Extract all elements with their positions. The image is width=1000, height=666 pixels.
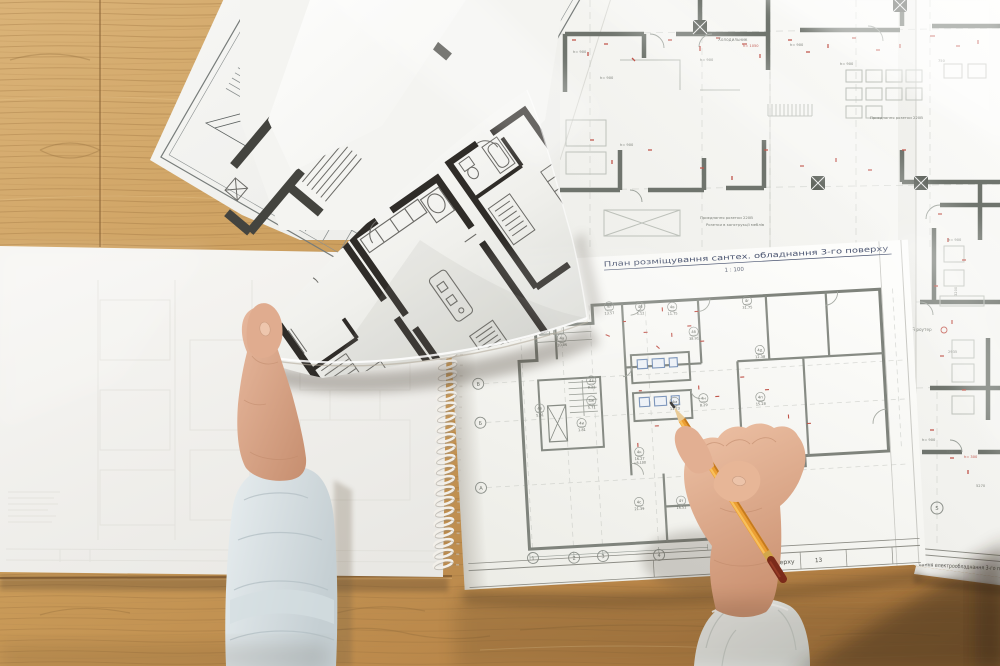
svg-text:15.28: 15.28 xyxy=(756,402,766,407)
notebook-scale: 1 : 100 xyxy=(724,267,744,274)
svg-text:4ж: 4ж xyxy=(588,398,595,403)
page-number: 13 xyxy=(815,558,823,564)
grid-bubble-5-label: 5 xyxy=(935,506,939,512)
svg-text:4д: 4д xyxy=(757,347,763,352)
svg-text:21.39: 21.39 xyxy=(634,507,644,512)
annotation-socket2: Приєднання розетки 220В xyxy=(700,215,753,220)
svg-text:3: 3 xyxy=(601,554,605,560)
annotation-socket3: Розетки в конструкції меблів xyxy=(706,222,765,227)
svg-text:4п: 4п xyxy=(758,394,764,399)
svg-text:h= 900: h= 900 xyxy=(600,76,614,80)
svg-text:16.51: 16.51 xyxy=(676,505,686,510)
svg-text:8.21: 8.21 xyxy=(588,385,596,389)
svg-text:h= 900: h= 900 xyxy=(620,143,634,147)
svg-text:1: 1 xyxy=(531,556,535,562)
svg-text:2: 2 xyxy=(572,556,576,562)
photo-architect-desk: Холодильник Wi-Fi роутер Приєднання розе… xyxy=(0,0,1000,666)
svg-text:5.31: 5.31 xyxy=(536,413,544,417)
svg-text:5270: 5270 xyxy=(976,484,986,488)
svg-text:h= 900: h= 900 xyxy=(840,62,854,66)
svg-text:h= 900: h= 900 xyxy=(573,50,587,54)
svg-text:12.38: 12.38 xyxy=(755,355,765,360)
scene: Холодильник Wi-Fi роутер Приєднання розе… xyxy=(0,0,1000,666)
svg-text:h= 900: h= 900 xyxy=(922,438,936,442)
svg-text:1.81: 1.81 xyxy=(578,428,586,432)
svg-text:h= 300: h= 300 xyxy=(964,455,978,459)
svg-text:4н: 4н xyxy=(701,395,707,400)
svg-text:750: 750 xyxy=(946,450,954,454)
svg-text:4г: 4г xyxy=(745,298,750,303)
elevation-mark: +8.100 xyxy=(633,461,646,466)
svg-text:h= 900: h= 900 xyxy=(790,43,804,47)
svg-text:4з: 4з xyxy=(589,378,594,383)
annotation-socket: Приєднання розетки 220В xyxy=(870,115,923,120)
svg-text:4и: 4и xyxy=(579,420,585,425)
svg-text:4с: 4с xyxy=(637,499,642,504)
svg-text:8.29: 8.29 xyxy=(700,403,708,407)
svg-text:5.71: 5.71 xyxy=(588,405,596,409)
